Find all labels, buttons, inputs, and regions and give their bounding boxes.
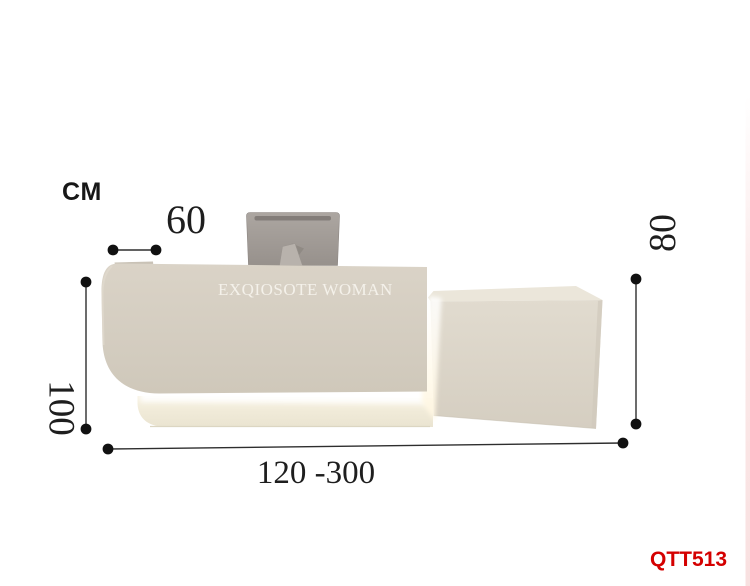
width-dimension-label: 120 -300 [202, 456, 430, 490]
monitor-top-vent [255, 216, 332, 221]
dimension-endpoint-dot [108, 245, 119, 256]
unit-label: CM [62, 179, 102, 205]
dimension-endpoint-dot [618, 438, 629, 449]
dimension-endpoint-dot [81, 424, 92, 435]
depth-dimension-line [108, 245, 162, 256]
left-height-dimension-line [81, 277, 92, 435]
depth-dimension-label: 60 [157, 201, 215, 238]
side-counter-top-face [428, 286, 603, 302]
right-height-dimension-label: 80 [643, 212, 683, 254]
dimension-endpoint-dot [103, 444, 114, 455]
monitor [247, 213, 340, 266]
right-height-dimension-line [631, 274, 642, 430]
left-height-dimension-label: 100 [42, 380, 80, 437]
desk-brand-text: EXQIOSOTE WOMAN [218, 281, 386, 299]
dimension-endpoint-dot [631, 419, 642, 430]
product-dimension-diagram: CM 60 100 80 120 -300 EXQIOSOTE WOMAN QT… [0, 0, 750, 586]
dimension-endpoint-dot [151, 245, 162, 256]
side-counter-front-face [431, 300, 603, 429]
dimension-endpoint-dot [631, 274, 642, 285]
width-dimension-line [103, 438, 629, 455]
desk-side-counter [428, 286, 603, 429]
right-edge-artifact [746, 95, 750, 586]
dimension-endpoint-dot [81, 277, 92, 288]
product-code: QTT513 [650, 549, 727, 571]
